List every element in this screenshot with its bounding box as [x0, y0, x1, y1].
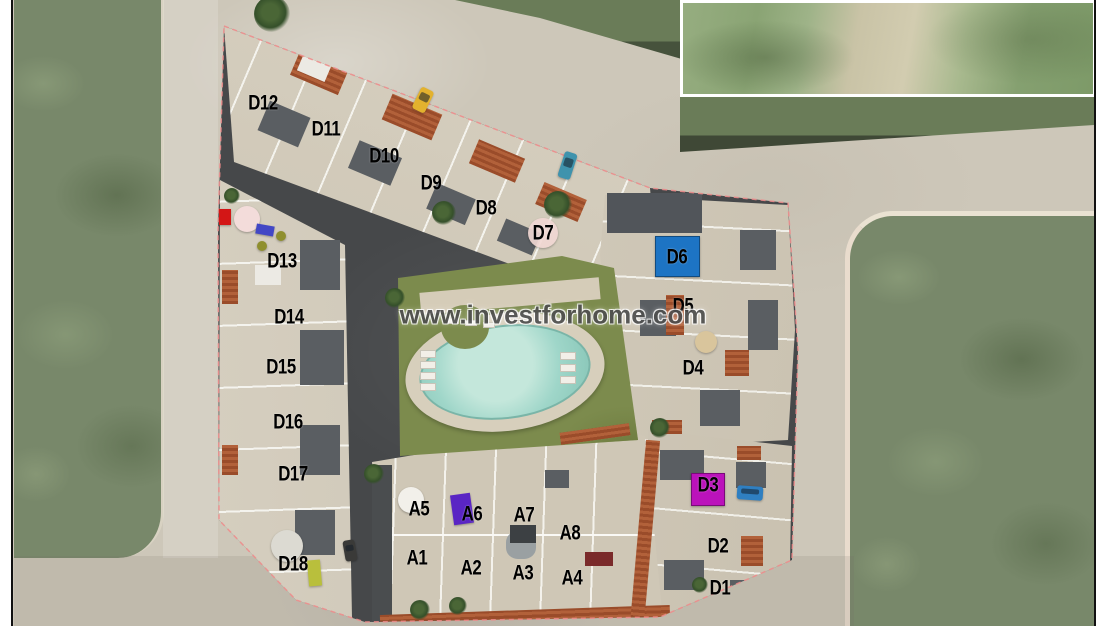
unit-label-a6[interactable]: A6: [462, 504, 483, 525]
unit-label-a7[interactable]: A7: [514, 505, 535, 526]
frame-margin-left: [0, 0, 13, 626]
unit-label-d16[interactable]: D16: [273, 412, 303, 433]
unit-label-a8[interactable]: A8: [560, 523, 581, 544]
unit-label-d1[interactable]: D1: [710, 578, 731, 599]
unit-label-a1[interactable]: A1: [407, 548, 428, 569]
frame-margin-right: [1094, 0, 1110, 626]
unit-label-d12[interactable]: D12: [248, 93, 278, 114]
unit-label-d2[interactable]: D2: [708, 536, 729, 557]
unit-label-a2[interactable]: A2: [461, 558, 482, 579]
unit-label-d10[interactable]: D10: [369, 146, 399, 167]
unit-label-a4[interactable]: A4: [562, 568, 583, 589]
unit-label-d18[interactable]: D18: [278, 554, 308, 575]
unit-label-d4[interactable]: D4: [683, 358, 704, 379]
unit-label-d9[interactable]: D9: [421, 173, 442, 194]
unit-label-d17[interactable]: D17: [278, 464, 308, 485]
unit-label-d3[interactable]: D3: [698, 475, 719, 496]
watermark: www.investforhome.com: [400, 300, 707, 331]
unit-label-d15[interactable]: D15: [266, 357, 296, 378]
unit-label-d14[interactable]: D14: [274, 307, 304, 328]
unit-label-a5[interactable]: A5: [409, 499, 430, 520]
unit-label-d6[interactable]: D6: [667, 247, 688, 268]
unit-label-d11[interactable]: D11: [312, 119, 341, 140]
unit-label-d7[interactable]: D7: [533, 223, 554, 244]
unit-label-a3[interactable]: A3: [513, 563, 534, 584]
site-plan-image: D12D11D10D9D8D7D13D14D15D16D17D18D6D5D4D…: [0, 0, 1110, 626]
unit-label-d8[interactable]: D8: [476, 198, 497, 219]
unit-label-d13[interactable]: D13: [267, 251, 297, 272]
